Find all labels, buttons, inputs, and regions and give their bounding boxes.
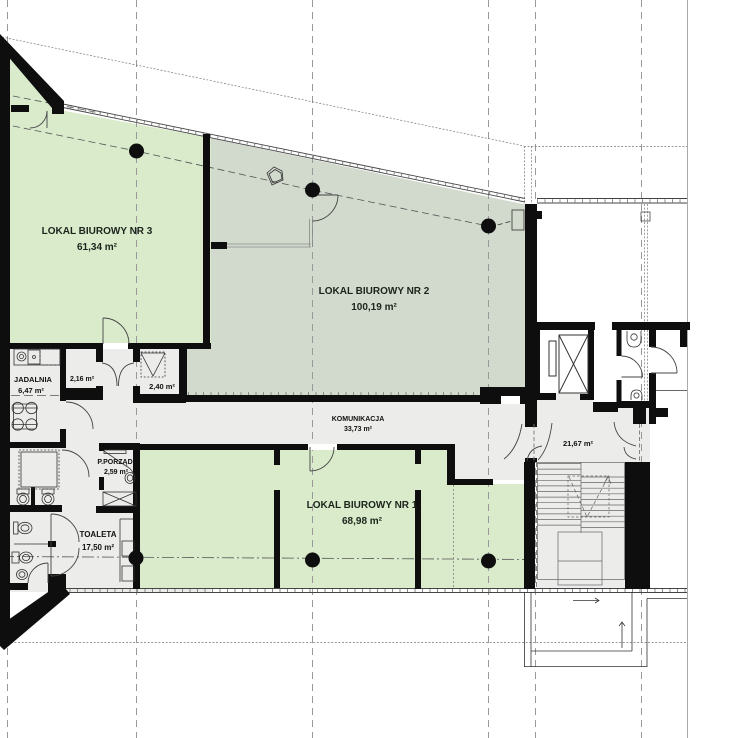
svg-text:68,98 m²: 68,98 m² bbox=[342, 516, 383, 527]
svg-text:33,73 m²: 33,73 m² bbox=[344, 426, 373, 433]
svg-text:KOMUNIKACJA: KOMUNIKACJA bbox=[332, 416, 385, 423]
svg-text:JADALNIA: JADALNIA bbox=[14, 375, 53, 384]
svg-text:P.PORZĄD.: P.PORZĄD. bbox=[97, 459, 134, 466]
svg-text:LOKAL BIUROWY NR 2: LOKAL BIUROWY NR 2 bbox=[319, 286, 430, 297]
svg-text:LOKAL BIUROWY NR 3: LOKAL BIUROWY NR 3 bbox=[42, 226, 153, 237]
svg-text:2,59 m²: 2,59 m² bbox=[104, 469, 129, 476]
svg-text:LOKAL BIUROWY NR 1: LOKAL BIUROWY NR 1 bbox=[307, 500, 418, 511]
svg-text:6,47 m²: 6,47 m² bbox=[18, 386, 44, 395]
svg-text:TOALETA: TOALETA bbox=[79, 530, 116, 539]
svg-text:61,34 m²: 61,34 m² bbox=[77, 242, 118, 253]
svg-text:17,50 m²: 17,50 m² bbox=[82, 543, 114, 552]
svg-text:100,19 m²: 100,19 m² bbox=[351, 302, 397, 313]
svg-text:21,67 m²: 21,67 m² bbox=[563, 439, 594, 448]
svg-text:2,16 m²: 2,16 m² bbox=[70, 376, 95, 383]
svg-text:2,40 m²: 2,40 m² bbox=[149, 382, 175, 391]
